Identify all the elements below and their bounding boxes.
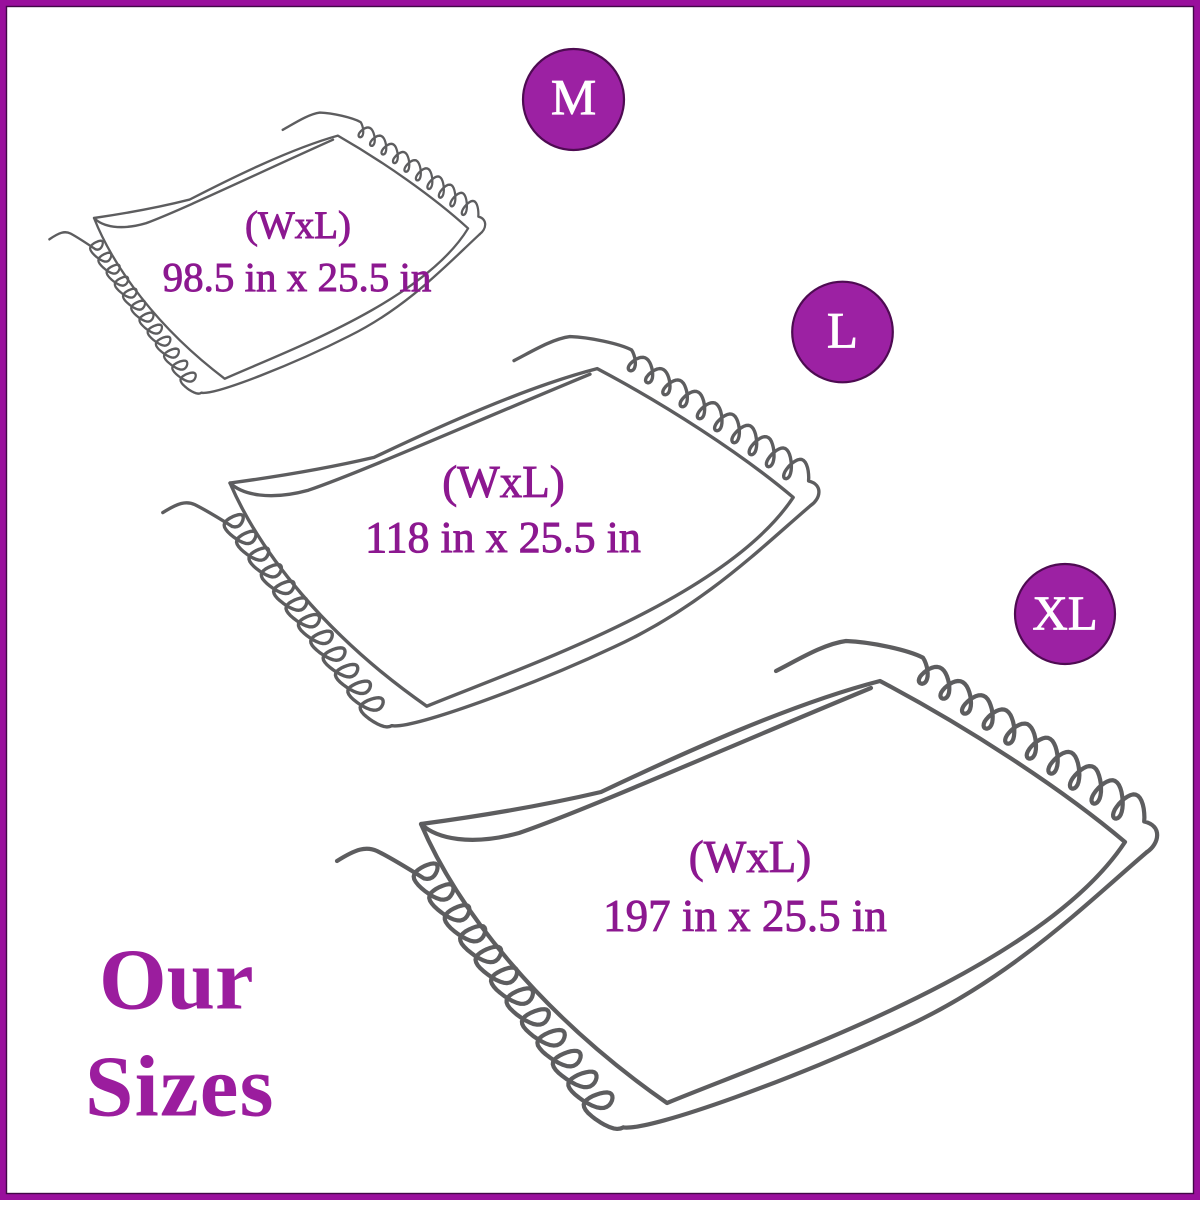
svg-text:Our: Our [99,931,254,1028]
svg-text:98.5 in x 25.5 in: 98.5 in x 25.5 in [163,254,432,300]
svg-text:(WxL): (WxL) [689,832,811,882]
svg-text:L: L [827,304,858,360]
svg-text:118 in x 25.5 in: 118 in x 25.5 in [365,513,641,562]
svg-text:M: M [551,71,596,127]
svg-text:(WxL): (WxL) [442,457,564,507]
svg-text:XL: XL [1032,586,1097,641]
svg-text:(WxL): (WxL) [245,204,351,247]
svg-text:Sizes: Sizes [85,1038,275,1135]
svg-text:197 in x 25.5 in: 197 in x 25.5 in [603,891,887,941]
